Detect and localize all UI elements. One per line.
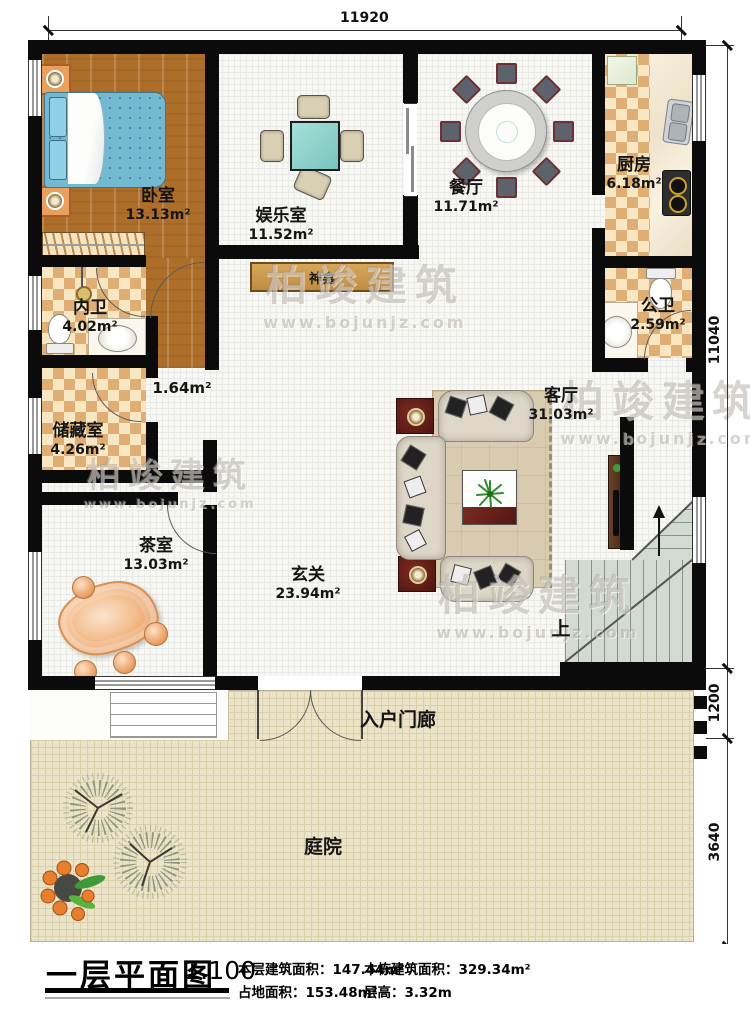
wall	[146, 368, 158, 378]
dining-chair	[496, 177, 517, 198]
stat-label: 占地面积：	[238, 985, 306, 1001]
sliding-door-leaf	[411, 146, 414, 192]
foyer-area: 23.94m²	[275, 586, 340, 604]
wall	[146, 422, 158, 470]
window	[28, 60, 42, 116]
stat-building-area: 本栋建筑面积：329.34m²	[364, 958, 531, 978]
courtyard-plants-icon	[20, 770, 200, 935]
living-room-name: 客厅	[528, 386, 593, 407]
stat-label: 本栋建筑面积：	[364, 962, 459, 978]
window	[692, 497, 706, 563]
hallway-area-value: 1.64m²	[152, 379, 211, 398]
dining-table	[465, 90, 547, 172]
entry-door-opening	[258, 676, 362, 690]
side-table	[398, 556, 436, 592]
dim-right-porch: 1200	[705, 673, 725, 733]
dining-chair	[440, 121, 461, 142]
stairs-up-arrow-head-icon	[653, 505, 665, 518]
dining-table-center	[496, 121, 518, 143]
dim-right-courtyard: 3640	[705, 812, 725, 872]
bedroom-name: 卧室	[125, 186, 190, 207]
sink-bowl	[667, 122, 687, 142]
room-label-living-room: 客厅 31.03m²	[528, 386, 593, 425]
floor-plan-canvas: 神龛	[0, 0, 750, 1010]
stat-value: 3.32m	[405, 985, 452, 1001]
wall	[686, 358, 706, 372]
stat-value: 329.34m²	[459, 962, 531, 978]
dimension-line-top	[48, 30, 682, 31]
room-label-inner-bath: 内卫 4.02m²	[62, 298, 117, 337]
sliding-door-leaf	[406, 108, 409, 154]
storage-name: 储藏室	[50, 421, 105, 442]
fence-post	[694, 746, 707, 759]
stove	[662, 170, 691, 216]
inner-bath-name: 内卫	[62, 298, 117, 319]
sink-icon	[601, 316, 632, 348]
wall	[28, 470, 216, 483]
wardrobe-rail	[43, 244, 144, 246]
stat-label: 本层建筑面积：	[238, 962, 333, 978]
stairs-up-text: 上	[551, 618, 570, 642]
dining-room-area: 11.71m²	[433, 199, 498, 217]
window	[28, 398, 42, 454]
sliding-door	[404, 103, 417, 197]
window	[95, 676, 215, 690]
wall	[205, 259, 219, 370]
stat-footprint-area: 占地面积：153.48m²	[238, 981, 378, 1001]
wall	[28, 355, 158, 368]
wall	[403, 195, 418, 259]
door-panel	[257, 690, 259, 739]
courtyard-name: 庭院	[304, 836, 342, 860]
bed-pillow	[49, 97, 67, 137]
steps-icon	[110, 692, 217, 738]
chair	[297, 95, 330, 119]
wall	[592, 256, 706, 268]
stat-floor-height: 层高：3.32m	[364, 981, 452, 1001]
room-label-kitchen: 厨房 6.18m²	[606, 155, 661, 194]
room-label-game-room: 娱乐室 11.52m²	[248, 206, 313, 245]
table-lamp-icon	[46, 70, 64, 88]
storage-area: 4.26m²	[50, 442, 105, 460]
sofa-pillow	[402, 504, 425, 527]
toilet-tank	[46, 343, 74, 354]
hallway-area-label: 1.64m²	[152, 379, 211, 398]
courtyard-label: 庭院	[304, 836, 342, 860]
inner-bath-area: 4.02m²	[62, 319, 117, 337]
kitchen-area: 6.18m²	[606, 176, 661, 194]
wall	[592, 268, 605, 372]
sofa-pillow	[466, 394, 487, 415]
bed-pillow	[49, 140, 67, 180]
rosette-icon	[407, 408, 425, 426]
chair	[340, 130, 364, 162]
tea-stool	[144, 622, 168, 646]
public-bath-name: 公卫	[630, 296, 685, 317]
title-underline-thick	[45, 988, 229, 993]
window	[28, 276, 42, 330]
shrine-label: 神龛	[309, 268, 335, 287]
bedroom-area: 13.13m²	[125, 207, 190, 225]
tv-icon	[613, 490, 619, 536]
shrine-cabinet: 神龛	[250, 262, 394, 292]
room-label-foyer: 玄关 23.94m²	[275, 565, 340, 604]
game-room-area: 11.52m²	[248, 227, 313, 245]
wall	[592, 40, 605, 195]
stairs-up-label: 上	[551, 618, 570, 642]
dim-right-house: 11040	[705, 310, 725, 370]
room-label-bedroom: 卧室 13.13m²	[125, 186, 190, 225]
dining-chair	[496, 63, 517, 84]
foyer-name: 玄关	[275, 565, 340, 586]
tea-room-name: 茶室	[123, 536, 188, 557]
wall	[146, 316, 158, 355]
wall	[560, 662, 692, 676]
dining-room-name: 餐厅	[433, 178, 498, 199]
burner-icon	[669, 177, 687, 195]
coffee-table-shelf	[463, 507, 516, 524]
wall	[592, 358, 648, 372]
porch-label: 入户门廊	[360, 709, 436, 733]
window	[28, 552, 42, 640]
wall	[205, 40, 219, 259]
title-block: 一层平面图 1:100 本层建筑面积：147.44m² 本栋建筑面积：329.3…	[0, 944, 750, 1010]
wall	[203, 440, 217, 492]
dining-chair	[553, 121, 574, 142]
drain-stem	[81, 266, 83, 287]
room-label-storage: 储藏室 4.26m²	[50, 421, 105, 460]
table-lamp-icon	[46, 192, 64, 210]
tea-stool	[113, 651, 136, 674]
sink-bowl	[670, 103, 690, 123]
porch-name: 入户门廊	[360, 709, 436, 733]
wall	[28, 492, 178, 505]
dimension-line-right	[727, 45, 728, 947]
living-room-area: 31.03m²	[528, 407, 593, 425]
dim-top-width: 11920	[340, 10, 389, 26]
wall	[205, 245, 419, 259]
room-label-dining: 餐厅 11.71m²	[433, 178, 498, 217]
stat-label: 层高：	[364, 985, 405, 1001]
tea-stool	[72, 576, 95, 599]
side-table	[396, 398, 434, 434]
wall	[620, 417, 634, 550]
coffee-table	[462, 470, 517, 525]
game-table	[290, 121, 340, 171]
game-room-name: 娱乐室	[248, 206, 313, 227]
title-underline-thin	[45, 997, 230, 999]
wall	[28, 255, 146, 267]
room-label-tea-room: 茶室 13.03m²	[123, 536, 188, 575]
chair	[260, 130, 284, 162]
bed-duvet-fold	[68, 93, 105, 184]
tea-room-area: 13.03m²	[123, 557, 188, 575]
window	[692, 75, 706, 141]
room-label-public-bath: 公卫 2.59m²	[630, 296, 685, 335]
public-bath-area: 2.59m²	[630, 317, 685, 335]
stairs-up-arrow-icon	[658, 516, 660, 556]
plant-icon	[475, 479, 505, 509]
rosette-icon	[409, 566, 427, 584]
wall	[403, 40, 418, 103]
burner-icon	[669, 195, 687, 213]
kitchen-name: 厨房	[606, 155, 661, 176]
fridge	[607, 56, 637, 85]
